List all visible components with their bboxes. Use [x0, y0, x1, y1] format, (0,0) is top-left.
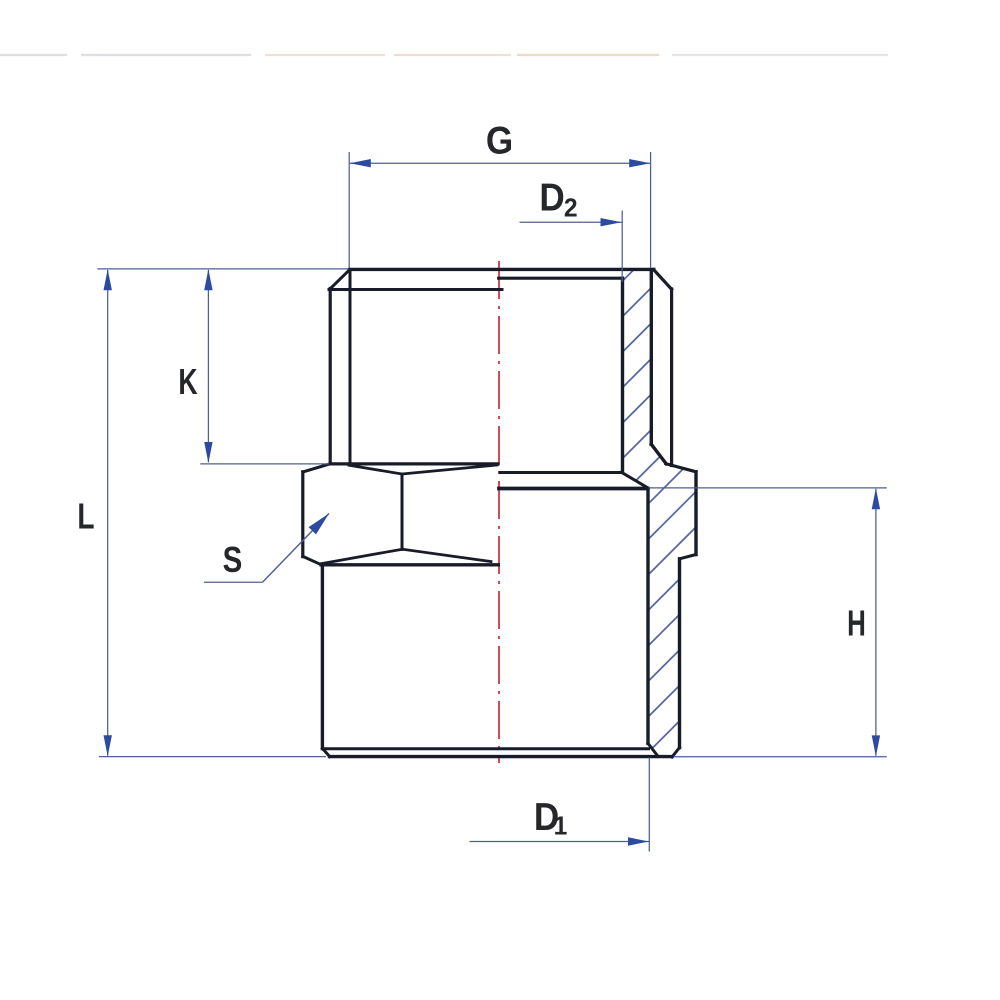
svg-text:S: S [223, 539, 243, 579]
svg-text:K: K [178, 361, 197, 402]
svg-text:H: H [847, 603, 866, 643]
svg-text:2: 2 [564, 194, 578, 223]
svg-text:L: L [77, 496, 94, 536]
svg-text:G: G [486, 118, 513, 162]
svg-text:1: 1 [554, 812, 568, 841]
svg-text:D: D [539, 175, 564, 219]
